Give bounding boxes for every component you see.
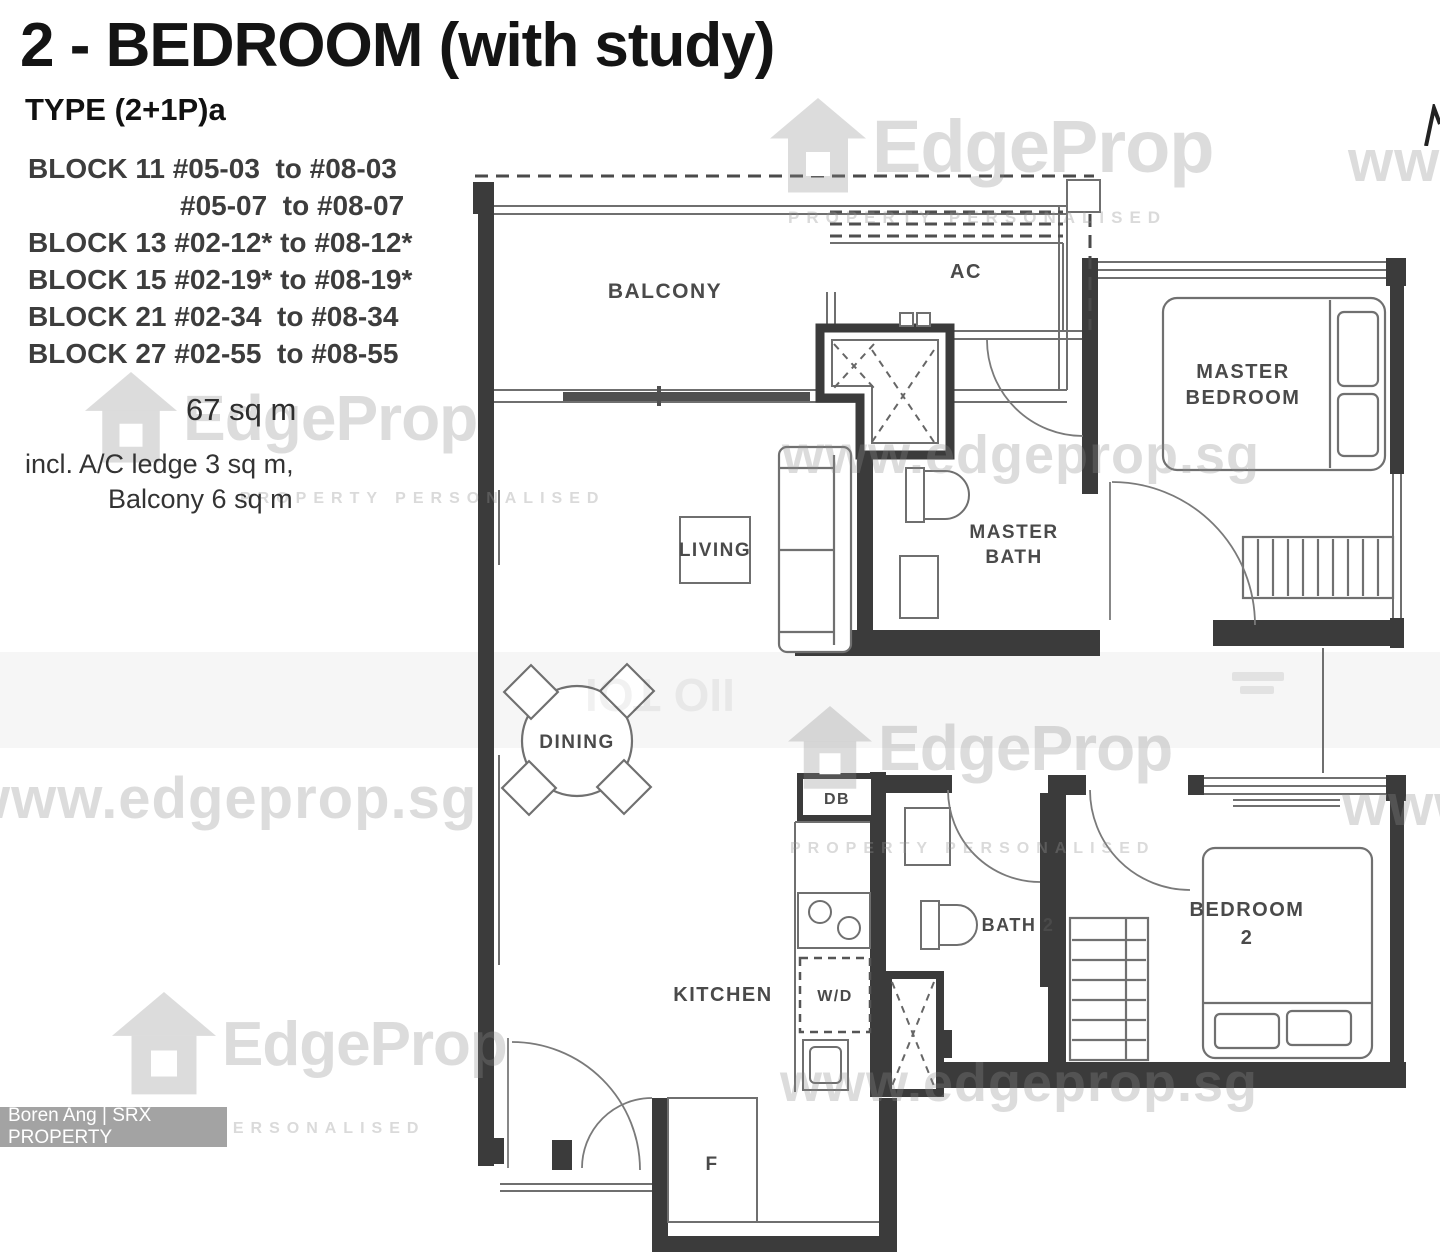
svg-text:BEDROOM: BEDROOM bbox=[1186, 387, 1301, 409]
block-line: BLOCK 27 #02-55 to #08-55 bbox=[28, 335, 412, 372]
pillow bbox=[1287, 1011, 1351, 1045]
dining-label: DINING bbox=[539, 732, 615, 753]
block-line: BLOCK 11 #05-03 to #08-03 bbox=[28, 150, 412, 187]
pillow bbox=[1338, 394, 1378, 456]
block-line: BLOCK 21 #02-34 to #08-34 bbox=[28, 298, 412, 335]
block-line: BLOCK 15 #02-19* to #08-19* bbox=[28, 261, 412, 298]
bath2-vanity bbox=[905, 808, 950, 865]
bedroom2-door bbox=[1090, 790, 1190, 890]
bottom-wall bbox=[886, 1062, 1406, 1088]
floorplan-page: BALCONY AC MASTER BEDROOM LIVING MASTER … bbox=[0, 0, 1440, 1252]
wd-label: W/D bbox=[817, 988, 853, 1005]
living-label: LIVING bbox=[679, 540, 751, 561]
bath2-shower bbox=[888, 975, 952, 1093]
master-shower bbox=[820, 313, 950, 455]
stove bbox=[798, 893, 870, 948]
svg-text:BATH: BATH bbox=[985, 547, 1042, 568]
master-bedroom-door bbox=[1112, 482, 1255, 625]
bath2-door bbox=[948, 790, 1040, 882]
unit-type-label: TYPE (2+1P)a bbox=[25, 92, 226, 128]
bath2-label: BATH 2 bbox=[982, 915, 1055, 935]
unit-area: 67 sq m bbox=[186, 392, 296, 428]
block-unit-list: BLOCK 11 #05-03 to #08-03 #05-07 to #08-… bbox=[28, 150, 412, 372]
master-bedroom-bottom-wall bbox=[1213, 620, 1404, 646]
ac-label: AC bbox=[950, 261, 982, 283]
bedroom2-label: BEDROOM bbox=[1190, 899, 1305, 921]
db-label: DB bbox=[824, 791, 850, 808]
svg-text:2: 2 bbox=[1241, 927, 1254, 949]
master-bath-door bbox=[987, 340, 1083, 436]
pillow bbox=[1338, 312, 1378, 386]
block-line: #05-07 to #08-07 bbox=[28, 187, 412, 224]
master-vanity bbox=[900, 556, 938, 618]
bath2-toilet bbox=[921, 901, 939, 949]
master-toilet bbox=[906, 468, 924, 522]
master-bedroom-label: MASTER bbox=[1196, 361, 1289, 383]
bathroom-fittings bbox=[900, 468, 977, 949]
balcony-ac-ledge bbox=[475, 176, 1100, 406]
agent-credit-badge: Boren Ang | SRX PROPERTY bbox=[0, 1107, 227, 1147]
kitchen-label: KITCHEN bbox=[673, 984, 772, 1006]
entry-door-leaf2 bbox=[582, 1098, 652, 1168]
pillow bbox=[1215, 1014, 1279, 1048]
agent-credit-text: Boren Ang | SRX PROPERTY bbox=[0, 1105, 227, 1149]
area-includes-line1: incl. A/C ledge 3 sq m, bbox=[25, 449, 294, 480]
bedroom2-right-wall bbox=[1390, 795, 1404, 1087]
block-line: BLOCK 13 #02-12* to #08-12* bbox=[28, 224, 412, 261]
cropped-edge-glyph bbox=[1424, 104, 1440, 146]
balcony-label: BALCONY bbox=[608, 280, 722, 303]
master-bath-label: MASTER bbox=[969, 522, 1058, 543]
fridge-label: F bbox=[705, 1154, 718, 1175]
master-bedroom-right-wall bbox=[1390, 258, 1404, 474]
page-title: 2 - BEDROOM (with study) bbox=[20, 10, 774, 81]
area-includes-line2: Balcony 6 sq m bbox=[108, 484, 293, 515]
left-wall bbox=[478, 186, 494, 1166]
